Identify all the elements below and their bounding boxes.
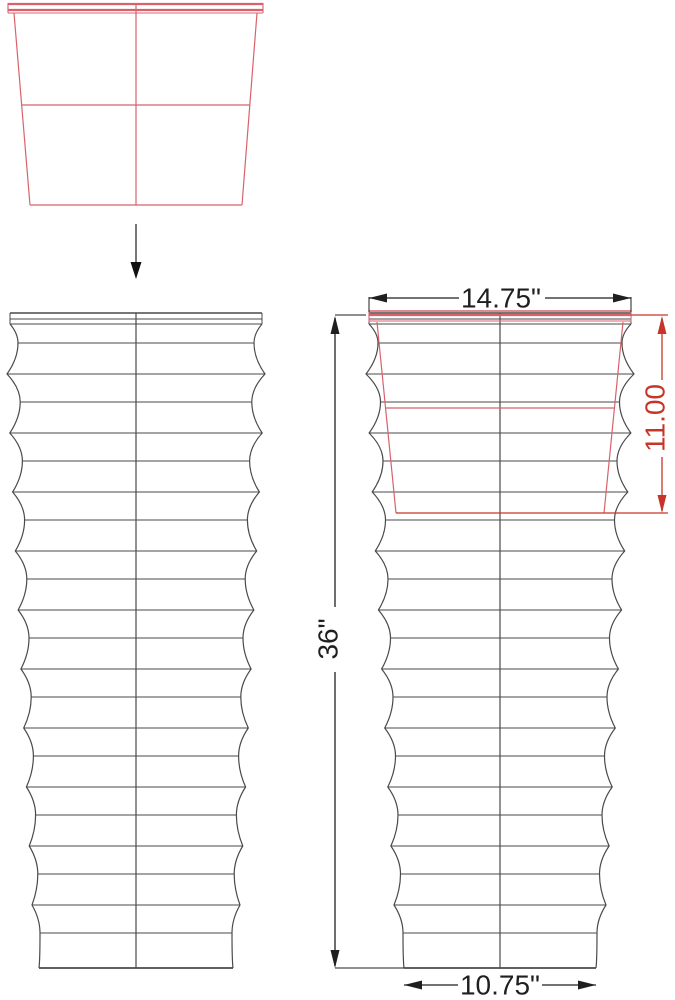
insert-pot-figure: [8, 3, 263, 205]
dim-label-total-height: 36": [313, 618, 344, 659]
dim-label-insert-depth: 11.00: [640, 384, 671, 452]
dimension-annotations: [331, 294, 632, 990]
planter-dimensioned-view: [366, 313, 634, 968]
insert-overlay: [369, 309, 668, 513]
planter-diagram: 14.75" 11.00 36" 10.75": [0, 0, 675, 1000]
dim-label-bottom-width: 10.75": [460, 970, 540, 1000]
planter-front-view: [7, 313, 265, 968]
dim-label-top-width: 14.75": [461, 283, 541, 314]
down-arrow-icon: [131, 224, 142, 279]
technical-drawing-canvas: 14.75" 11.00 36" 10.75": [0, 0, 675, 1000]
